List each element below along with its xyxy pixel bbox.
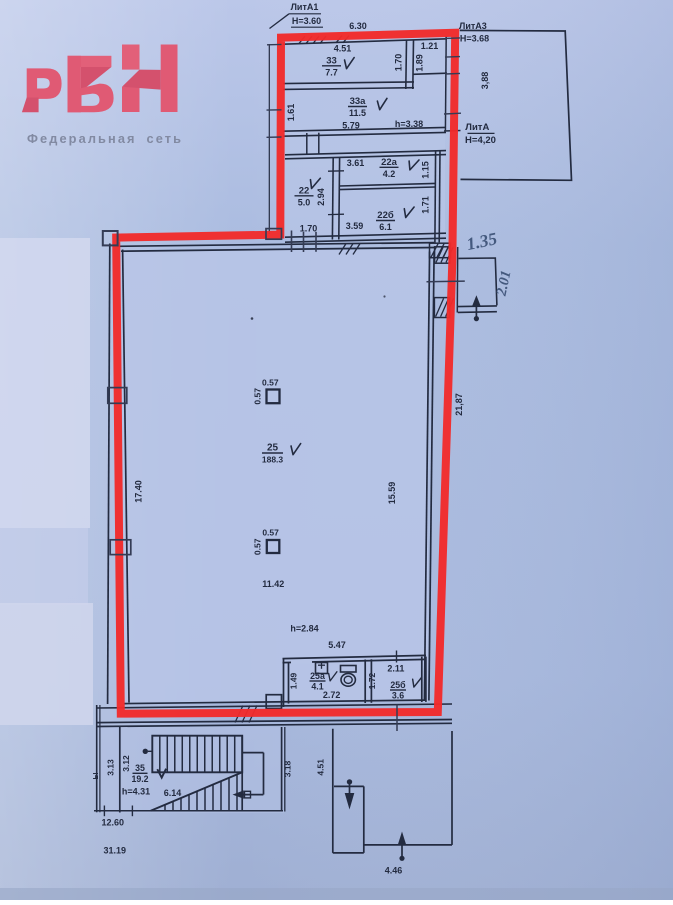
svg-text:7.7: 7.7 (325, 67, 338, 77)
svg-text:Федеральная: Федеральная (27, 131, 137, 146)
svg-text:0.57: 0.57 (253, 538, 263, 555)
svg-text:21,87: 21,87 (454, 393, 464, 416)
svg-text:15.59: 15.59 (387, 482, 397, 505)
svg-text:3.12: 3.12 (121, 755, 131, 772)
svg-text:31.19: 31.19 (104, 846, 127, 856)
svg-text:Н=3.60: Н=3.60 (292, 16, 321, 26)
svg-text:33а: 33а (350, 96, 367, 107)
svg-text:Н=3.68: Н=3.68 (460, 34, 489, 44)
svg-text:11.5: 11.5 (349, 108, 366, 118)
svg-text:сеть: сеть (147, 131, 184, 146)
svg-text:19.2: 19.2 (131, 774, 148, 784)
svg-text:3.6: 3.6 (392, 691, 404, 701)
svg-text:1.49: 1.49 (288, 672, 298, 689)
svg-text:2.11: 2.11 (387, 664, 404, 674)
svg-text:3.13: 3.13 (106, 759, 116, 776)
svg-text:188.3: 188.3 (262, 455, 284, 465)
svg-text:33: 33 (326, 55, 337, 66)
svg-text:1.71: 1.71 (421, 196, 431, 214)
svg-text:0.57: 0.57 (252, 388, 262, 405)
svg-text:12.60: 12.60 (102, 818, 125, 828)
svg-text:1.21: 1.21 (421, 41, 439, 51)
svg-text:11.42: 11.42 (262, 579, 284, 589)
svg-text:6.1: 6.1 (379, 222, 392, 232)
svg-text:4.51: 4.51 (316, 759, 326, 776)
svg-text:1.70: 1.70 (394, 54, 404, 72)
svg-text:1.15: 1.15 (421, 161, 431, 179)
svg-text:h=3.38: h=3.38 (395, 119, 423, 129)
svg-text:5.79: 5.79 (342, 120, 360, 130)
svg-text:22: 22 (299, 185, 310, 196)
svg-text:0.57: 0.57 (262, 528, 279, 538)
svg-text:3,88: 3,88 (480, 72, 490, 90)
svg-text:3.18: 3.18 (282, 760, 292, 777)
svg-text:5.0: 5.0 (298, 197, 311, 207)
svg-text:ЛитА3: ЛитА3 (459, 21, 487, 31)
svg-text:2.72: 2.72 (323, 690, 341, 700)
svg-text:2.94: 2.94 (316, 188, 326, 206)
svg-text:1.61: 1.61 (286, 104, 296, 122)
svg-text:25: 25 (267, 443, 279, 454)
svg-text:h=4.31: h=4.31 (122, 787, 150, 797)
svg-text:22а: 22а (381, 157, 398, 168)
svg-text:6.30: 6.30 (349, 21, 367, 31)
svg-text:3.61: 3.61 (347, 158, 365, 168)
svg-text:5.47: 5.47 (328, 640, 346, 650)
svg-text:4.2: 4.2 (383, 169, 396, 179)
svg-text:h=2.84: h=2.84 (290, 624, 318, 634)
svg-text:Н=4,20: Н=4,20 (465, 135, 496, 146)
svg-text:ЛитА1: ЛитА1 (291, 2, 319, 12)
svg-text:25а: 25а (310, 671, 325, 681)
svg-text:4.51: 4.51 (334, 44, 352, 54)
svg-text:1.70: 1.70 (300, 224, 318, 234)
svg-text:6.14: 6.14 (164, 788, 182, 798)
svg-text:25б: 25б (390, 680, 406, 690)
svg-text:4.1: 4.1 (311, 682, 323, 692)
svg-text:4.46: 4.46 (385, 866, 403, 876)
svg-text:17.40: 17.40 (134, 480, 144, 503)
svg-text:35: 35 (135, 763, 145, 773)
svg-text:0.57: 0.57 (262, 377, 279, 387)
svg-text:22б: 22б (377, 210, 394, 221)
svg-text:ЛитА: ЛитА (465, 122, 489, 133)
svg-text:1.72: 1.72 (367, 672, 377, 689)
svg-text:ЬI: ЬI (93, 772, 100, 779)
svg-text:1.89: 1.89 (415, 54, 425, 72)
svg-text:3.59: 3.59 (346, 221, 364, 231)
